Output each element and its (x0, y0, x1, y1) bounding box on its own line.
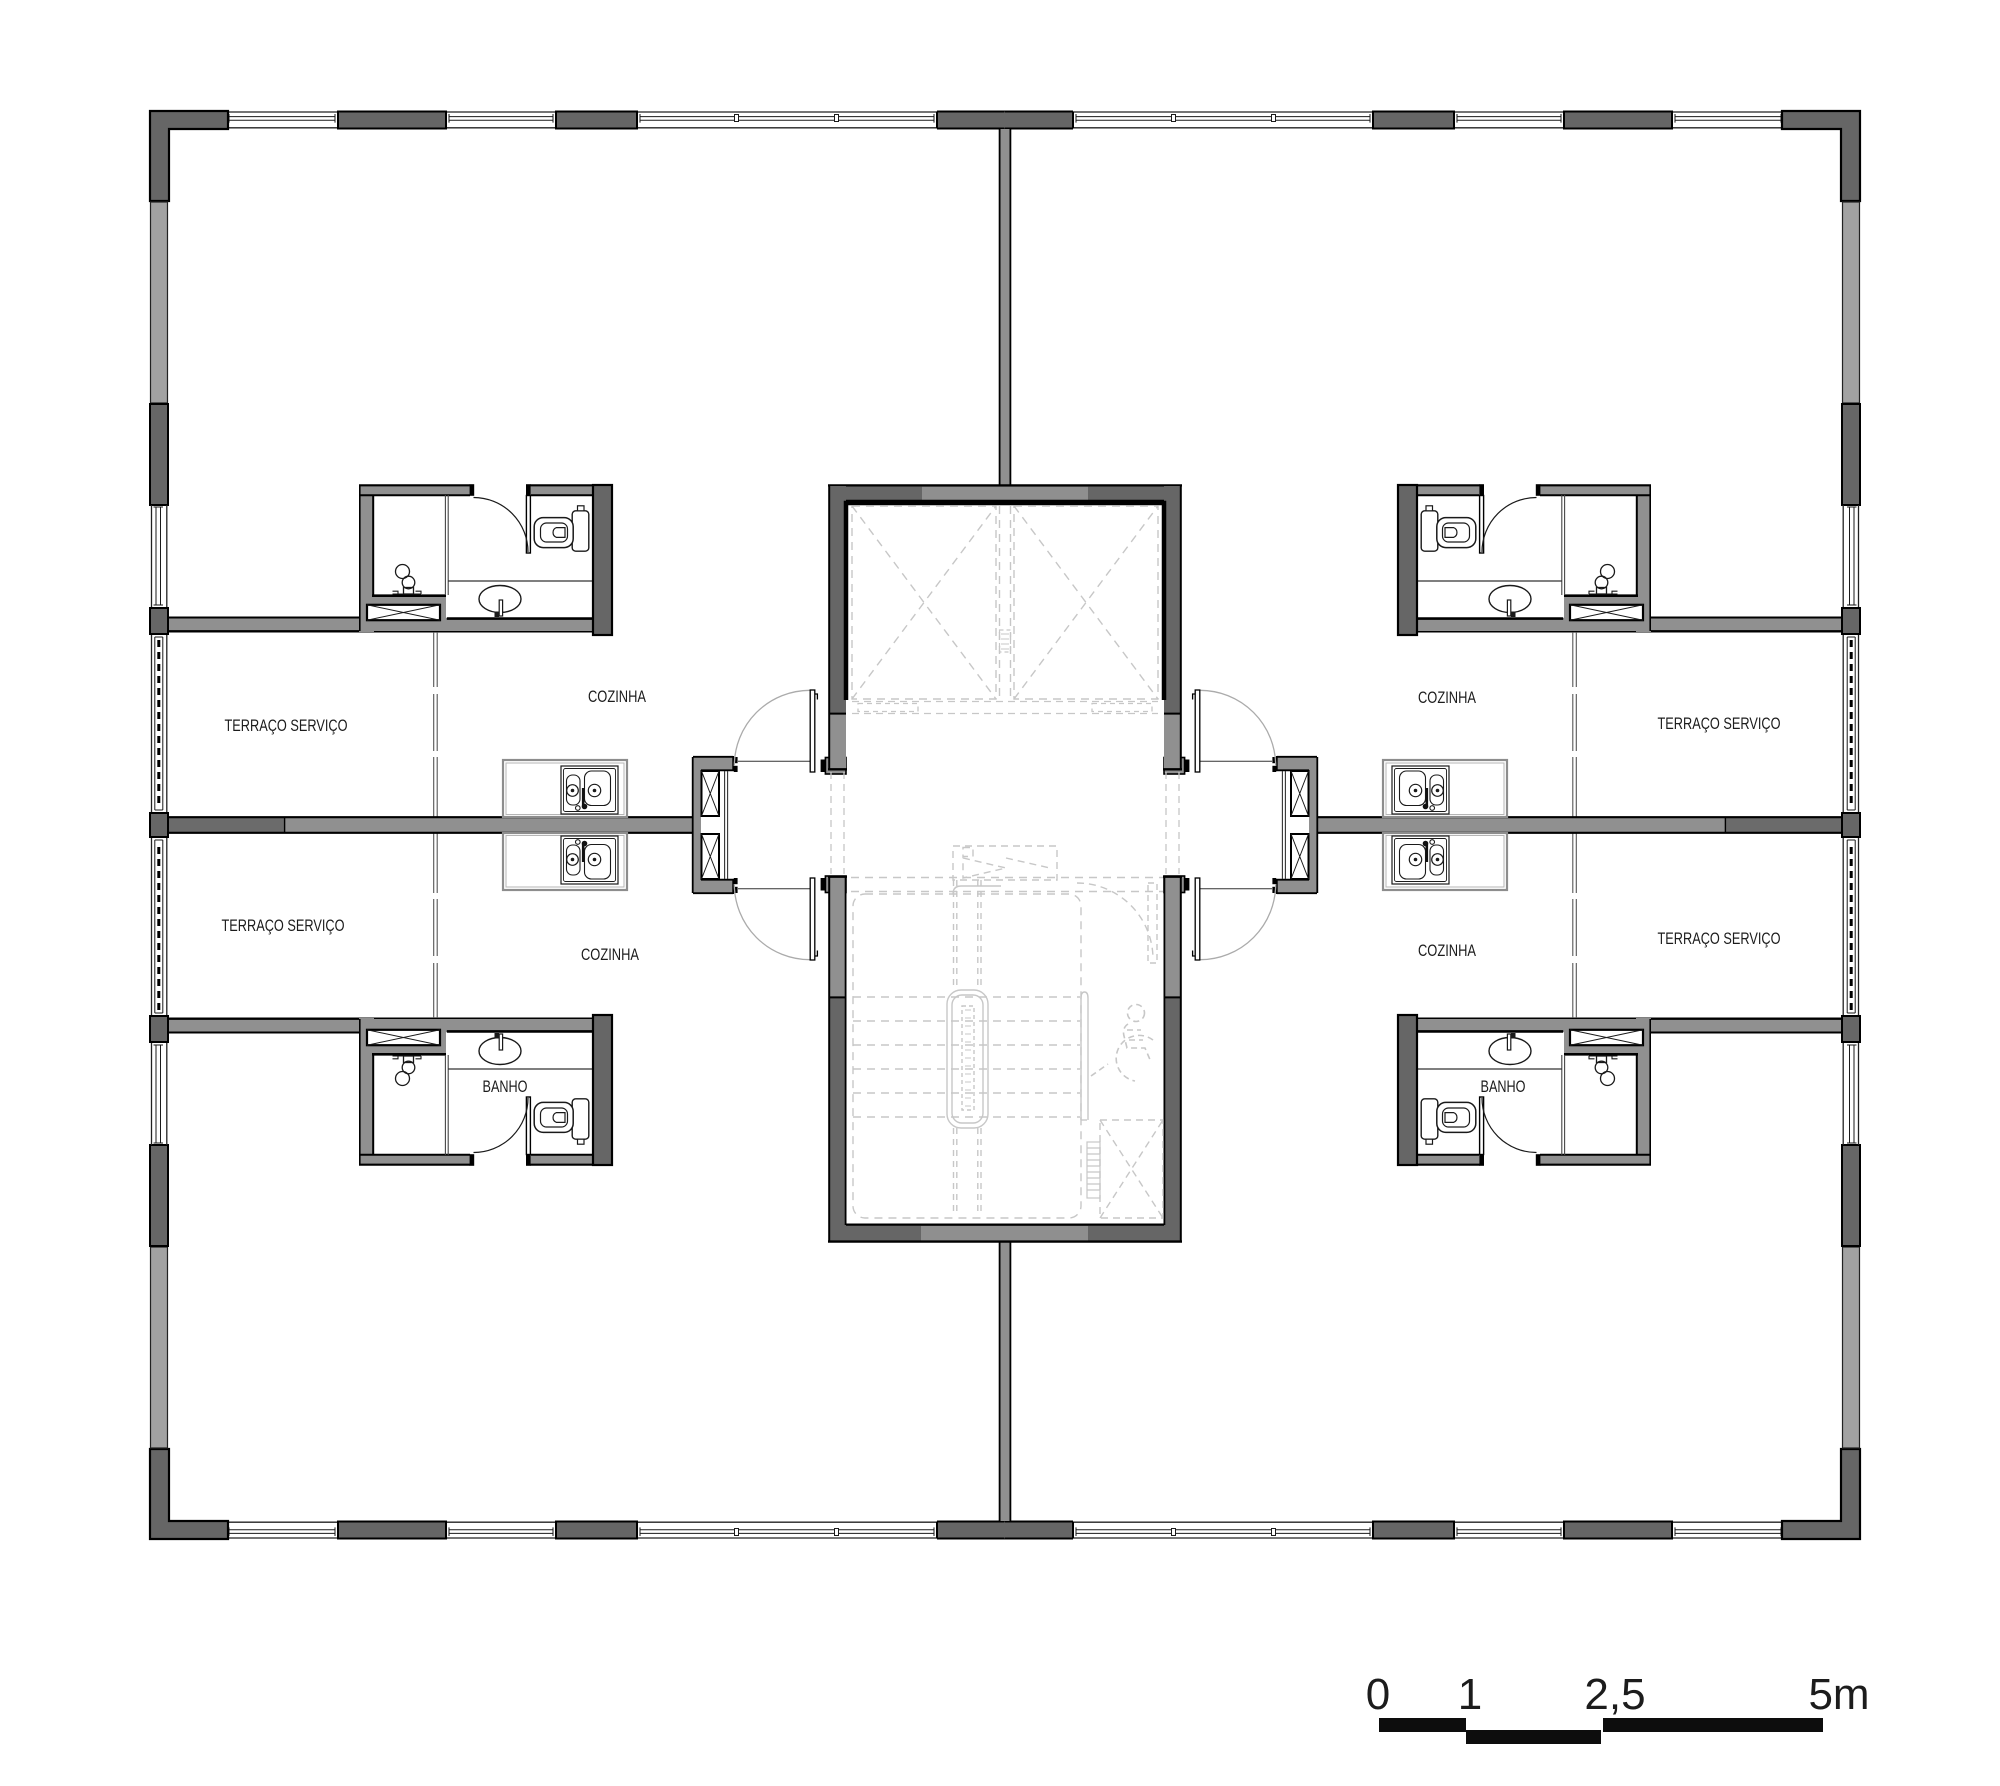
svg-text:TERRAÇO SERVIÇO: TERRAÇO SERVIÇO (225, 717, 348, 735)
svg-text:COZINHA: COZINHA (581, 946, 639, 964)
svg-text:0: 0 (1366, 1670, 1390, 1719)
svg-text:2,5: 2,5 (1584, 1670, 1645, 1719)
svg-text:TERRAÇO SERVIÇO: TERRAÇO SERVIÇO (1658, 715, 1781, 733)
svg-text:COZINHA: COZINHA (1418, 942, 1476, 960)
svg-text:COZINHA: COZINHA (1418, 689, 1476, 707)
svg-text:TERRAÇO SERVIÇO: TERRAÇO SERVIÇO (1658, 930, 1781, 948)
svg-text:5m: 5m (1808, 1670, 1869, 1719)
svg-text:BANHO: BANHO (483, 1078, 528, 1096)
svg-text:BANHO: BANHO (1481, 1078, 1526, 1096)
svg-text:TERRAÇO SERVIÇO: TERRAÇO SERVIÇO (222, 917, 345, 935)
svg-text:COZINHA: COZINHA (588, 688, 646, 706)
svg-text:1: 1 (1458, 1670, 1482, 1719)
